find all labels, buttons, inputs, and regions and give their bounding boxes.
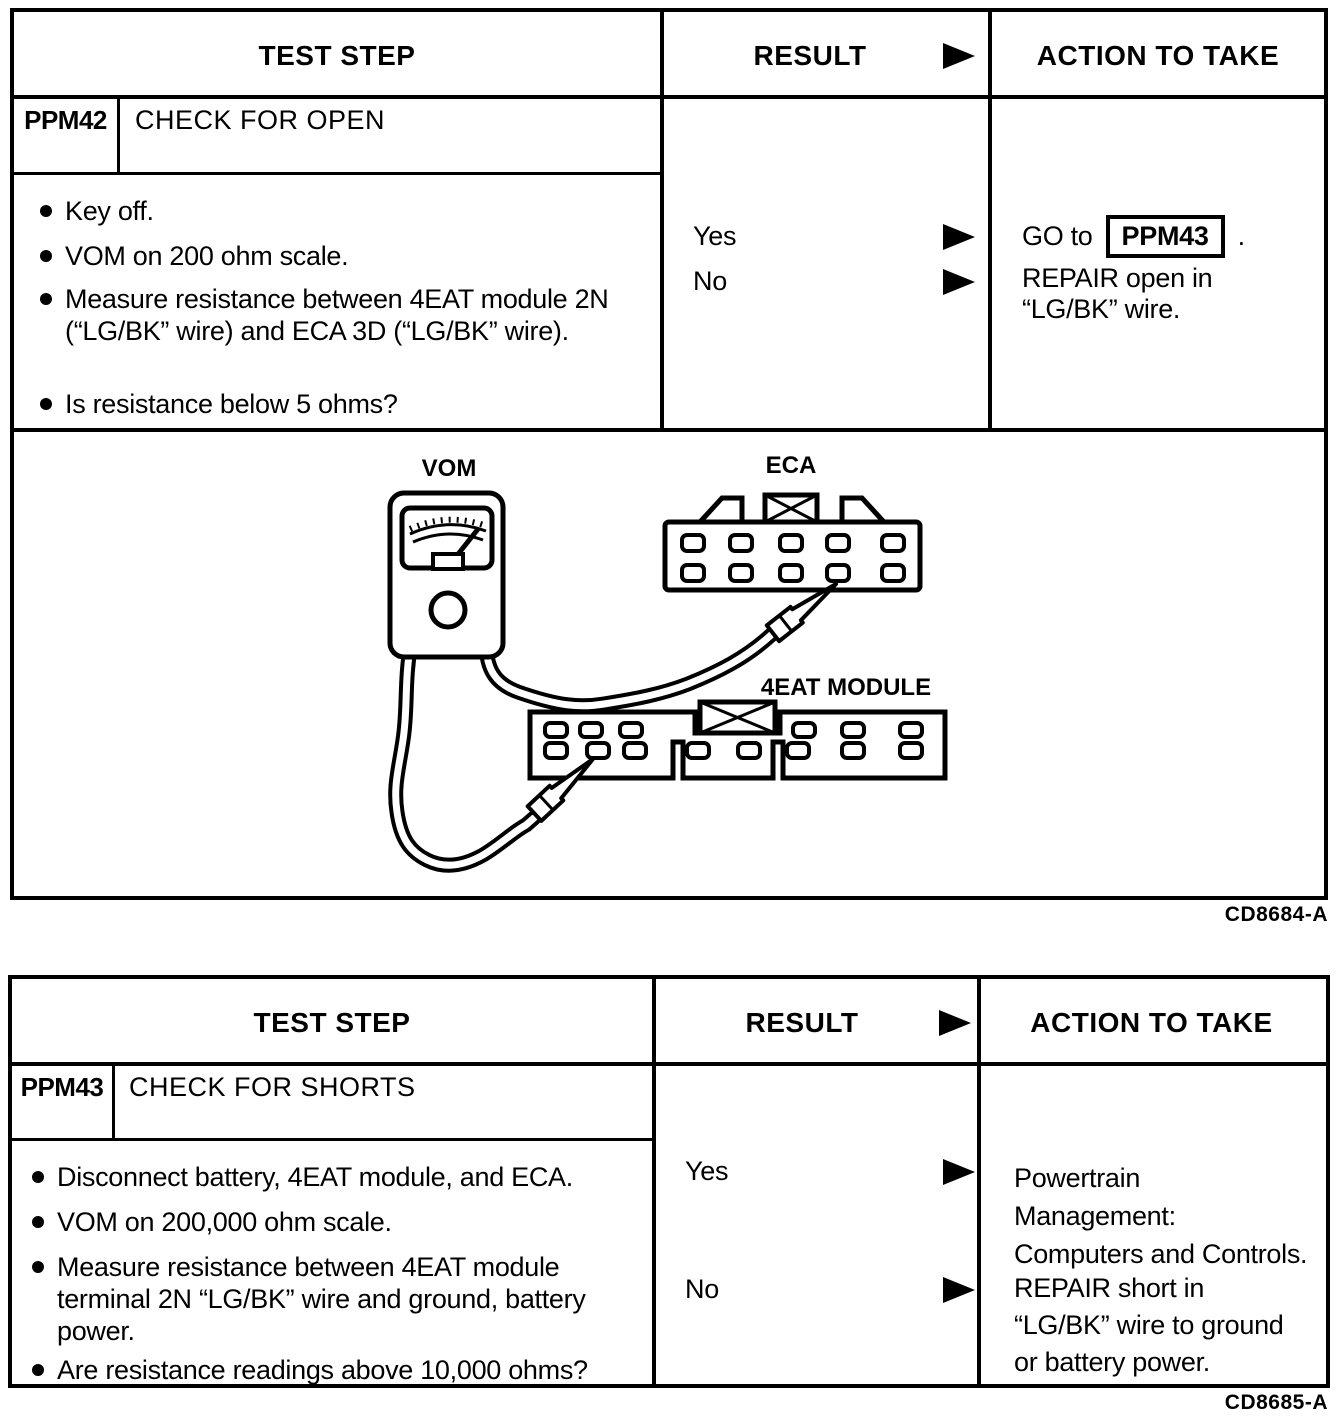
result-header-arrow-icon (939, 1010, 971, 1036)
column-divider-2 (988, 12, 992, 428)
action-yes: GO to PPM43 . (1022, 215, 1245, 258)
column-divider-2 (977, 979, 981, 1384)
pinpoint-test-table-ppm42: TEST STEP RESULT ACTION TO TAKE PPM42 CH… (10, 8, 1328, 900)
result-no-arrow-icon (943, 269, 975, 295)
test-step-bullet: Are resistance readings above 10,000 ohm… (28, 1354, 602, 1386)
column-header-action: ACTION TO TAKE (992, 40, 1324, 72)
column-divider-1 (652, 979, 656, 1384)
action-line: Management: (1014, 1197, 1307, 1235)
step-id-divider (112, 1066, 115, 1138)
action-line: Powertrain (1014, 1159, 1307, 1197)
column-header-test-step: TEST STEP (12, 1007, 652, 1039)
test-hookup-diagram: VOM ECA 4EAT MODULE (14, 432, 1324, 896)
step-reference-box: PPM43 (1106, 215, 1225, 258)
result-yes-label: Yes (693, 221, 736, 252)
step-title: CHECK FOR OPEN (135, 105, 385, 136)
test-step-bullet: VOM on 200 ohm scale. (36, 240, 610, 272)
result-yes-arrow-icon (943, 1159, 975, 1185)
figure-code-1: CD8684-A (1225, 903, 1328, 927)
action-line: or battery power. (1014, 1344, 1284, 1381)
module-connector (530, 702, 945, 778)
vom-label: VOM (422, 455, 477, 482)
eca-tab-left (700, 498, 742, 522)
result-yes-arrow-icon (943, 224, 975, 250)
column-header-result: RESULT (660, 40, 960, 72)
vom-needle-pivot (433, 554, 463, 569)
eca-tab-right (842, 498, 884, 522)
go-to-text: GO to (1022, 221, 1093, 252)
test-step-bullet: Is resistance below 5 ohms? (36, 388, 610, 420)
vom-meter (390, 493, 503, 657)
service-manual-page: TEST STEP RESULT ACTION TO TAKE PPM42 CH… (0, 0, 1344, 1418)
pinpoint-test-table-ppm43: TEST STEP RESULT ACTION TO TAKE PPM43 CH… (8, 975, 1330, 1388)
action-no: REPAIR open in “LG/BK” wire. (1022, 263, 1257, 325)
action-line: Computers and Controls. (1014, 1235, 1307, 1273)
column-header-result: RESULT (652, 1007, 952, 1039)
test-step-bullet: Measure resistance between 4EAT module t… (28, 1251, 602, 1347)
step-id-divider (117, 99, 120, 172)
module-label: 4EAT MODULE (761, 674, 931, 701)
column-divider-1 (660, 12, 664, 428)
step-id: PPM43 (12, 1072, 112, 1103)
test-step-bullet: Measure resistance between 4EAT module 2… (36, 283, 610, 347)
result-no-arrow-icon (943, 1277, 975, 1303)
action-line: “LG/BK” wire to ground (1014, 1307, 1284, 1344)
column-header-action: ACTION TO TAKE (981, 1007, 1322, 1039)
result-yes-label: Yes (685, 1156, 728, 1187)
step-row-divider (12, 1138, 656, 1141)
result-no-label: No (693, 266, 727, 297)
step-id: PPM42 (14, 105, 117, 136)
header-divider (14, 95, 1324, 99)
step-title: CHECK FOR SHORTS (129, 1072, 416, 1103)
eca-label: ECA (766, 452, 817, 479)
test-step-bullet: VOM on 200,000 ohm scale. (28, 1206, 602, 1238)
step-row-divider (14, 172, 664, 175)
eca-connector (665, 495, 920, 590)
header-divider (12, 1062, 1326, 1066)
test-step-bullet: Key off. (36, 195, 610, 227)
action-line: REPAIR short in (1014, 1270, 1284, 1307)
result-header-arrow-icon (943, 43, 975, 69)
go-to-period: . (1238, 221, 1245, 252)
figure-code-2: CD8685-A (1225, 1391, 1328, 1415)
action-no: REPAIR short in “LG/BK” wire to ground o… (1014, 1270, 1284, 1381)
column-header-test-step: TEST STEP (14, 40, 660, 72)
result-no-label: No (685, 1274, 719, 1305)
test-step-bullet: Disconnect battery, 4EAT module, and ECA… (28, 1161, 602, 1193)
vom-range-knob (431, 593, 465, 627)
action-yes: Powertrain Management: Computers and Con… (1014, 1159, 1307, 1273)
